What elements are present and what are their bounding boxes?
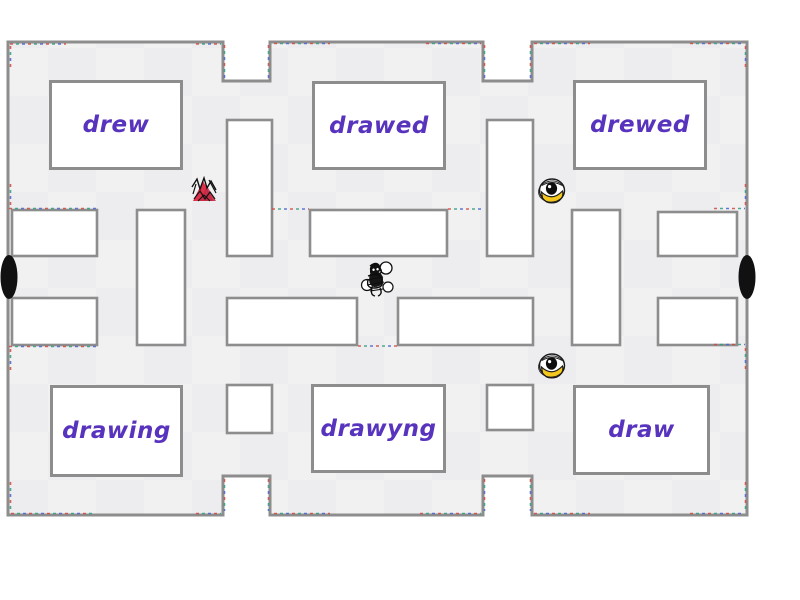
wall-block — [658, 298, 737, 345]
answer-box-drawyng[interactable]: drawyng — [311, 384, 446, 473]
answer-label: drewed — [590, 112, 690, 138]
black-doodle-player[interactable] — [358, 260, 396, 298]
wall-block — [398, 298, 533, 345]
answer-box-draw[interactable]: draw — [573, 385, 710, 475]
answer-label: drew — [83, 112, 150, 138]
wall-block — [227, 120, 272, 256]
wall-block — [310, 210, 447, 256]
tunnel-opening-left — [1, 255, 18, 299]
wall-block — [12, 298, 97, 345]
yellow-eye-enemy — [537, 352, 567, 380]
wall-block — [227, 385, 272, 433]
answer-box-drawed[interactable]: drawed — [312, 81, 446, 170]
answer-label: drawed — [329, 113, 429, 139]
wall-block — [487, 385, 533, 430]
black-doodle-player-icon — [358, 260, 396, 298]
wall-block — [658, 212, 737, 256]
wall-block — [572, 210, 620, 345]
wall-block — [227, 298, 357, 345]
red-scribble-enemy — [190, 176, 218, 203]
answer-box-drawing[interactable]: drawing — [50, 385, 183, 477]
answer-label: drawyng — [321, 416, 437, 442]
answer-label: draw — [608, 417, 675, 443]
maze-chase-game[interactable]: drew drawed drewed drawing drawyng draw — [0, 0, 800, 600]
yellow-eye-enemy-icon — [537, 352, 567, 380]
wall-block — [12, 210, 97, 256]
answer-label: drawing — [62, 418, 171, 444]
answer-box-drew[interactable]: drew — [49, 80, 183, 170]
wall-block — [487, 120, 533, 256]
tunnel-opening-right — [739, 255, 756, 299]
yellow-eye-enemy-icon — [537, 177, 567, 205]
wall-block — [137, 210, 185, 345]
yellow-eye-enemy — [537, 177, 567, 205]
red-scribble-enemy-icon — [190, 176, 218, 203]
answer-box-drewed[interactable]: drewed — [573, 80, 707, 170]
